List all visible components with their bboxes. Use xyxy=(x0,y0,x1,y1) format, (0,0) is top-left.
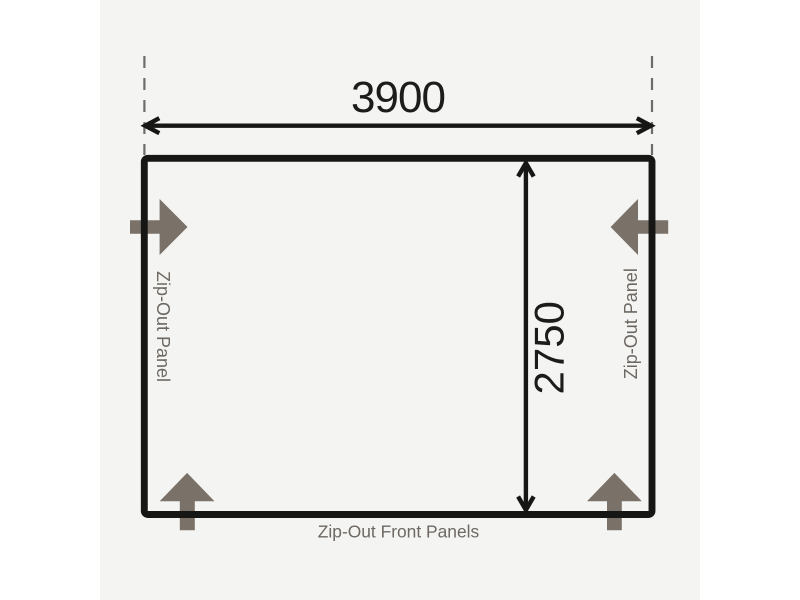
svg-text:3900: 3900 xyxy=(351,73,445,122)
svg-text:Zip-Out Panel: Zip-Out Panel xyxy=(621,268,641,379)
svg-text:Zip-Out Front Panels: Zip-Out Front Panels xyxy=(318,521,480,541)
svg-text:2750: 2750 xyxy=(526,301,573,394)
svg-text:Zip-Out Panel: Zip-Out Panel xyxy=(153,271,173,382)
